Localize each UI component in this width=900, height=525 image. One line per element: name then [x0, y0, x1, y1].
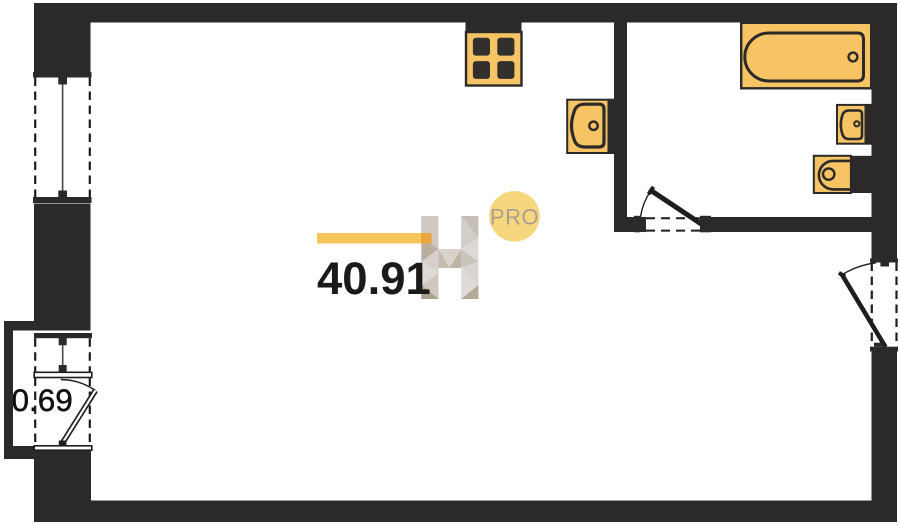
- svg-text:0.69: 0.69: [12, 382, 73, 418]
- svg-text:PRO: PRO: [490, 205, 539, 230]
- svg-text:40.91: 40.91: [317, 253, 431, 304]
